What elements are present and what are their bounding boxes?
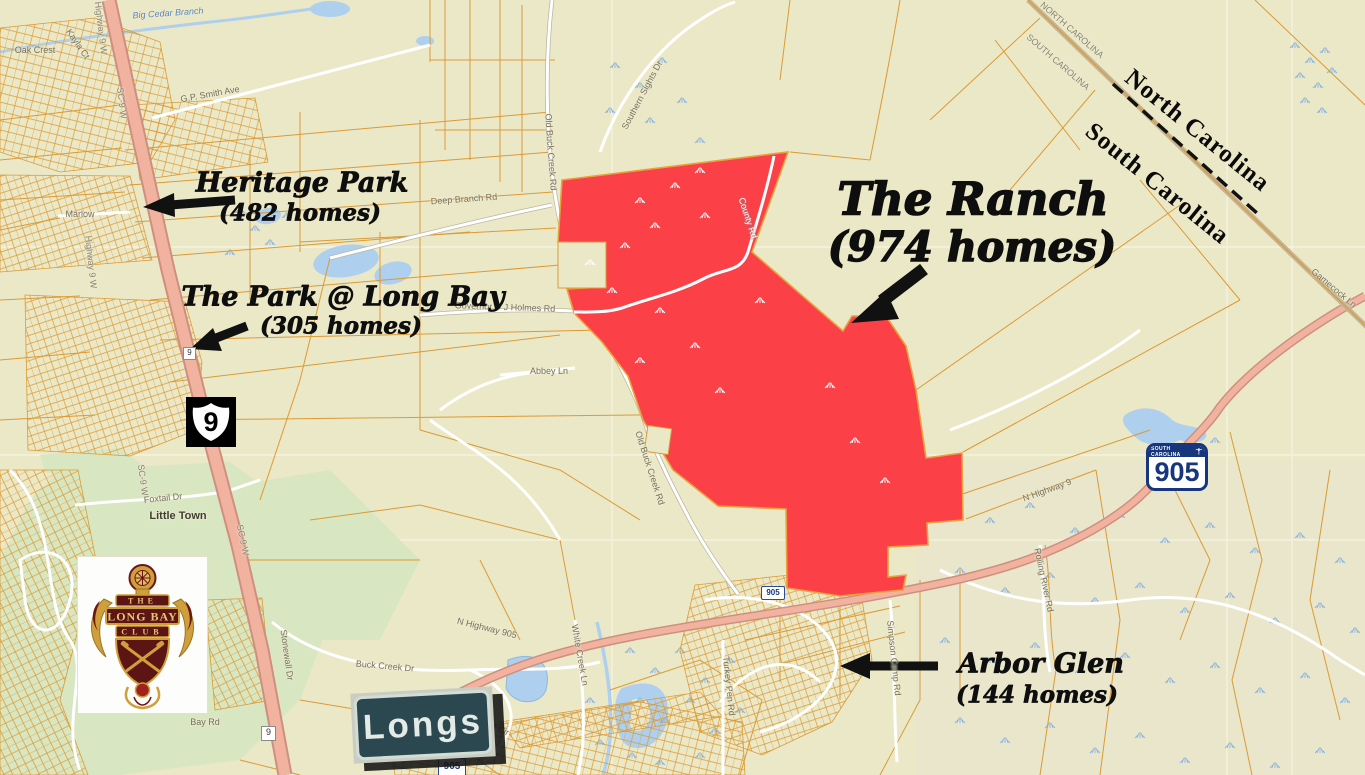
logo-the: THE xyxy=(128,597,157,606)
route-marker-905-south: 905 xyxy=(438,758,466,775)
sc-905-band: SOUTH CAROLINA xyxy=(1149,446,1205,457)
palmetto-icon xyxy=(1195,447,1203,456)
route-marker-9-small: 9 xyxy=(183,347,196,360)
heritage-park-label: Heritage Park xyxy=(196,168,409,199)
park-long-bay-homes: (305 homes) xyxy=(260,313,422,340)
heritage-park-homes: (482 homes) xyxy=(219,200,381,227)
map-label: Marlow xyxy=(65,209,94,219)
map-label: Little Town xyxy=(149,510,206,522)
us-9-shield: 9 xyxy=(186,397,236,447)
longs-sign-text: Longs xyxy=(353,689,492,760)
the-ranch-label: The Ranch xyxy=(838,173,1109,226)
longs-town-sign: Longs xyxy=(350,686,495,763)
map-canvas: Big Cedar BranchOak CrestKayla CtHighway… xyxy=(0,0,1365,775)
sc-905-state-text: SOUTH CAROLINA xyxy=(1151,446,1195,458)
park-long-bay-label: The Park @ Long Bay xyxy=(181,282,504,313)
us-9-number: 9 xyxy=(203,407,218,437)
route-marker-9: 9 xyxy=(261,726,276,741)
arbor-glen-homes: (144 homes) xyxy=(956,682,1118,709)
logo-long-bay: LONG BAY xyxy=(107,610,178,624)
map-label: Bay Rd xyxy=(190,717,220,727)
map-label: Abbey Ln xyxy=(530,366,568,376)
map-label: Oak Crest xyxy=(15,45,56,55)
route-marker-905: 905 xyxy=(761,586,785,600)
logo-club: CLUB xyxy=(121,628,163,637)
the-ranch-homes: (974 homes) xyxy=(828,223,1116,271)
arbor-glen-label: Arbor Glen xyxy=(958,649,1124,680)
sc-905-shield: SOUTH CAROLINA 905 xyxy=(1146,443,1208,491)
long-bay-club-logo: THE LONG BAY CLUB xyxy=(77,556,208,714)
sc-905-number: 905 xyxy=(1149,457,1205,487)
